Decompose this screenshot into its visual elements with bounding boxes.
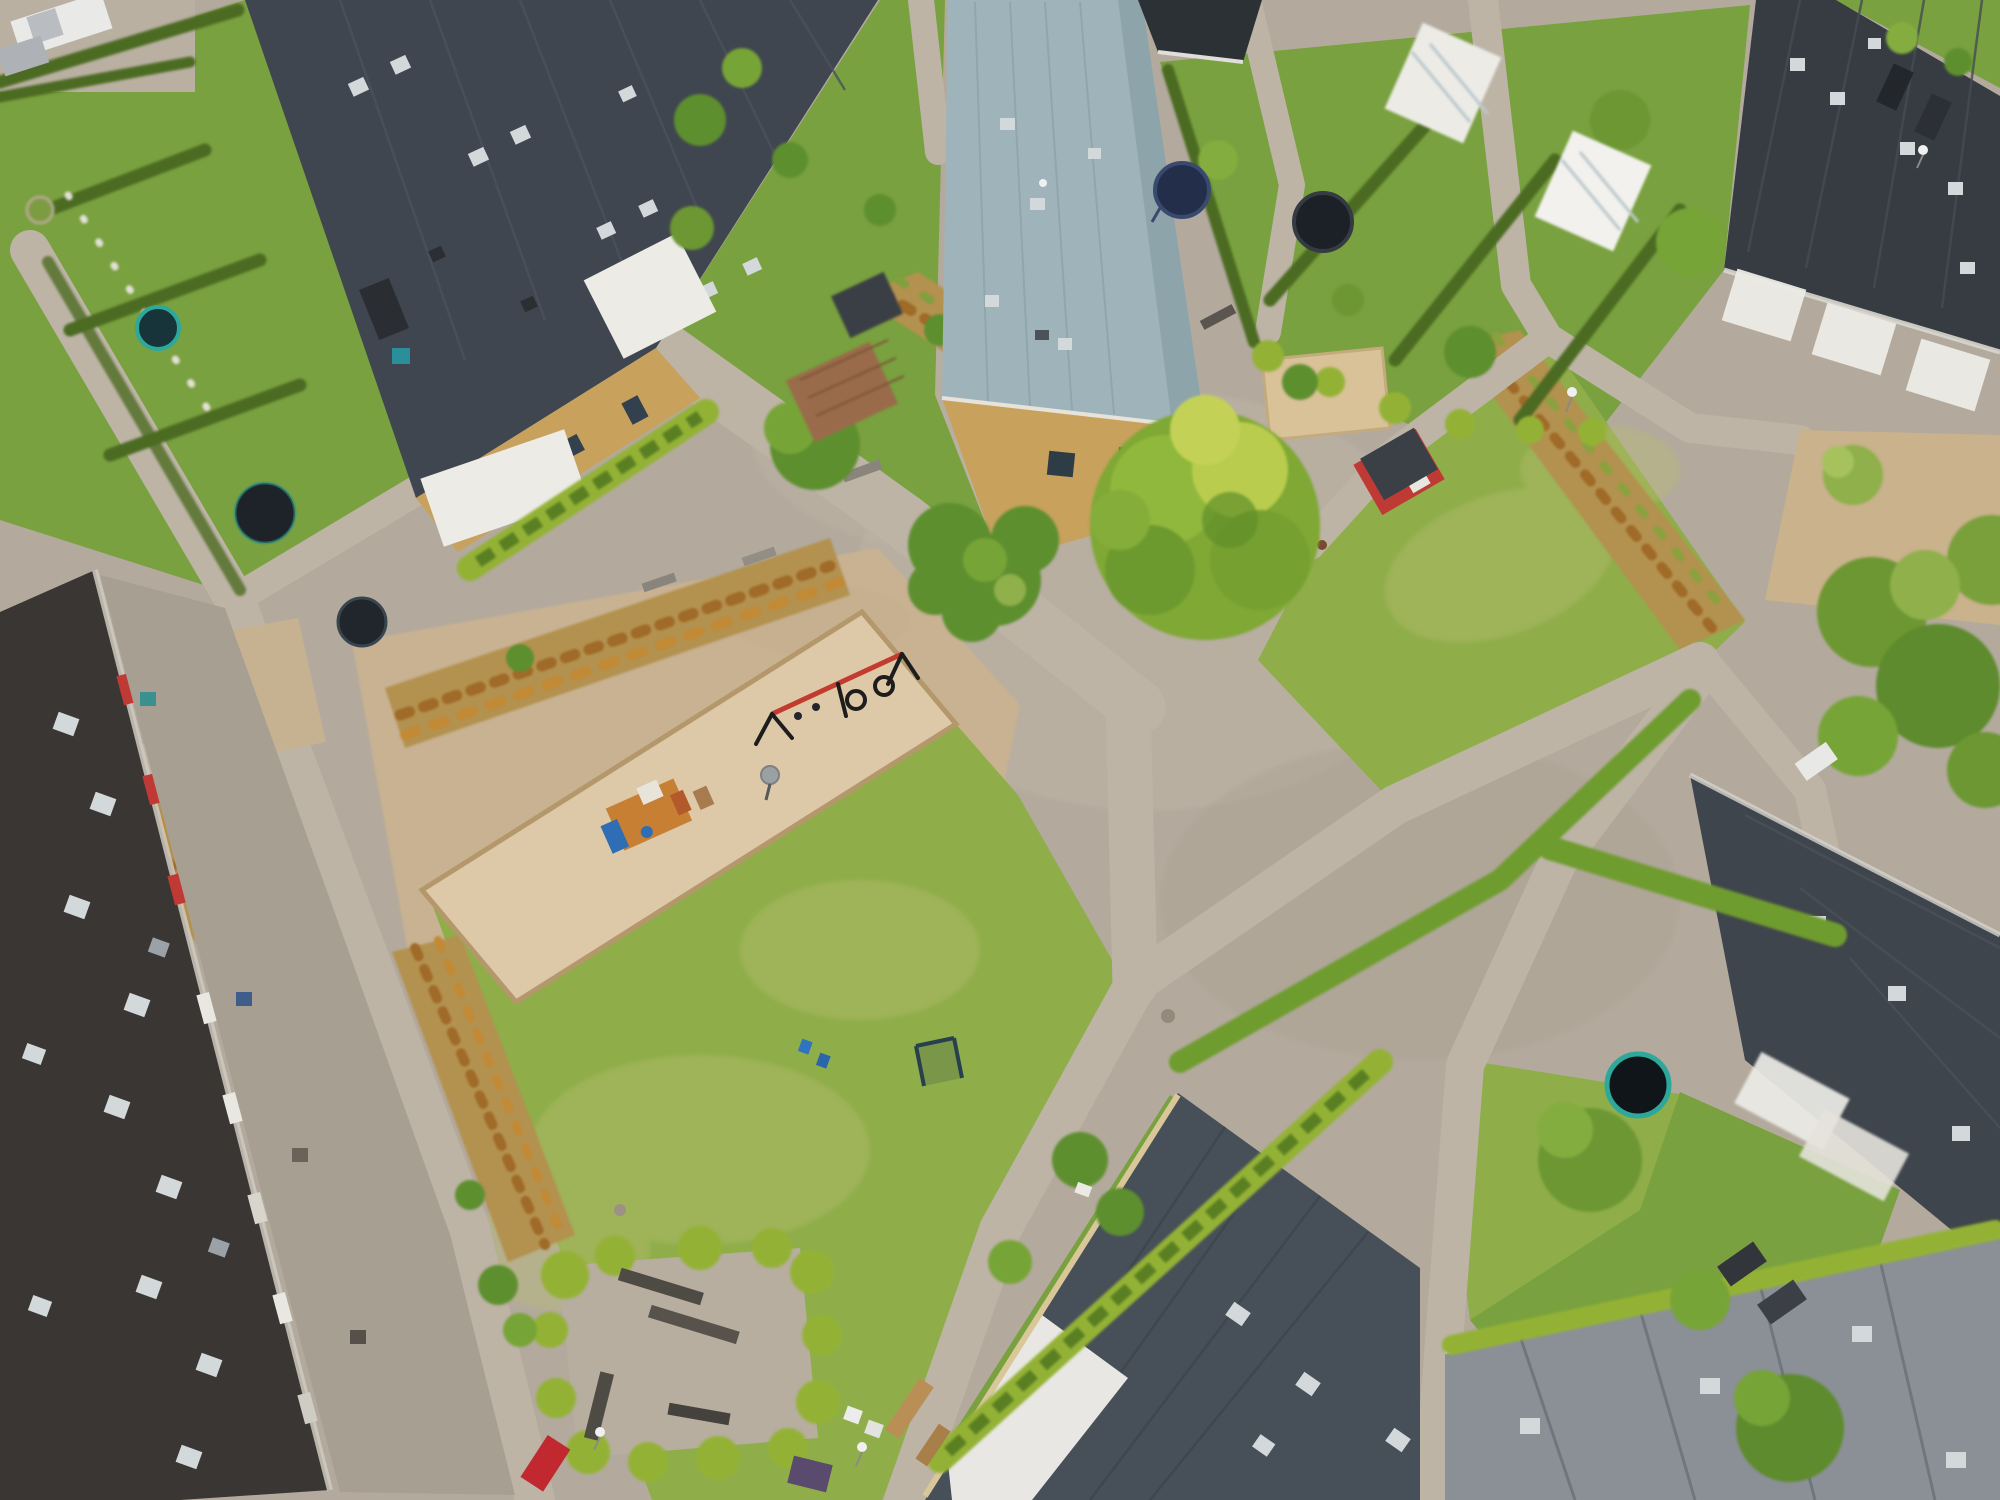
teal-item	[392, 348, 410, 364]
football-goal	[916, 1038, 962, 1086]
trampoline-teal-bottomright	[1607, 1054, 1669, 1116]
aerial-photo-canvas	[0, 0, 2000, 1500]
lamp	[1039, 179, 1047, 187]
trampoline-dark-2	[338, 598, 386, 646]
aerial-photo	[0, 0, 2000, 1500]
trampoline-dark-1	[235, 483, 295, 543]
trampoline-teal-topleft	[137, 307, 179, 349]
trampoline-dark-3	[1294, 193, 1352, 251]
